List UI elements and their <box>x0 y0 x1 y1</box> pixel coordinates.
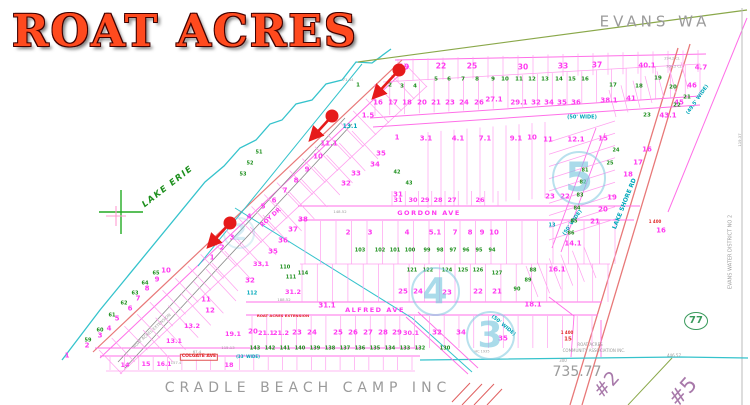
section-watermark: 3 <box>466 311 515 360</box>
section-watermarks-layer: 5432 <box>0 0 750 405</box>
map-title: ROAT ACRES <box>12 6 358 57</box>
section-watermark: 5 <box>552 151 606 205</box>
plat-map: EVANS WACRADLE BEACH CAMP INC735.77#2#57… <box>0 0 750 405</box>
section-watermark: 4 <box>411 267 460 316</box>
section-watermark: 2 <box>223 217 255 249</box>
